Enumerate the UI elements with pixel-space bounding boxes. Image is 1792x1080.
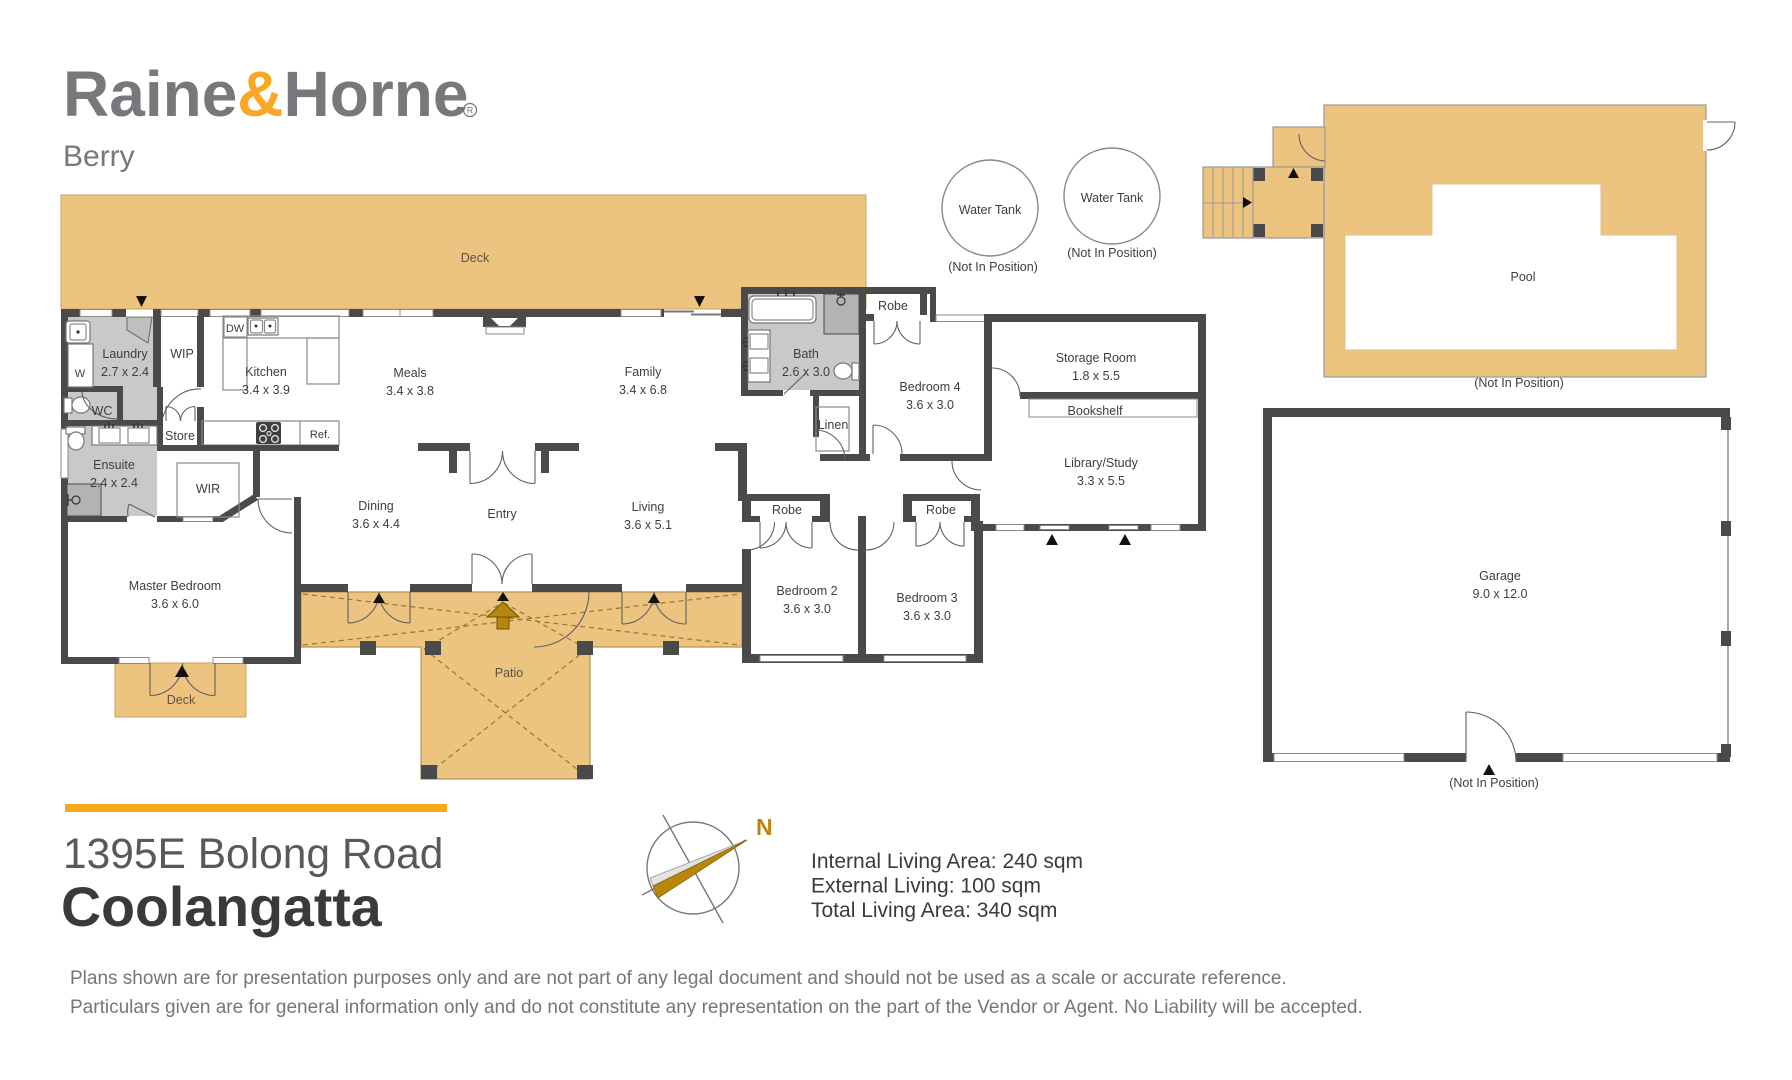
svg-text:3.6 x 4.4: 3.6 x 4.4 (352, 517, 400, 531)
svg-text:Bath: Bath (793, 347, 819, 361)
svg-text:Water Tank: Water Tank (959, 203, 1022, 217)
svg-text:WIR: WIR (196, 482, 220, 496)
svg-text:Robe: Robe (926, 503, 956, 517)
svg-text:Dining: Dining (358, 499, 393, 513)
svg-text:Particulars given are for gene: Particulars given are for general inform… (70, 997, 1363, 1018)
svg-text:Family: Family (625, 365, 663, 379)
svg-text:Garage: Garage (1479, 569, 1521, 583)
svg-text:Robe: Robe (772, 503, 802, 517)
svg-text:Linen: Linen (818, 418, 849, 432)
svg-text:Store: Store (165, 429, 195, 443)
svg-text:Library/Study: Library/Study (1064, 456, 1138, 470)
svg-text:Ref.: Ref. (310, 429, 330, 441)
svg-text:Living: Living (632, 500, 665, 514)
svg-text:DW: DW (226, 323, 245, 335)
svg-text:Kitchen: Kitchen (245, 365, 287, 379)
svg-text:Entry: Entry (487, 507, 517, 521)
svg-text:Master Bedroom: Master Bedroom (129, 579, 221, 593)
svg-text:3.6 x 5.1: 3.6 x 5.1 (624, 518, 672, 532)
svg-text:Berry: Berry (63, 140, 135, 173)
svg-text:Ensuite: Ensuite (93, 458, 135, 472)
svg-text:2.6 x 3.0: 2.6 x 3.0 (782, 365, 830, 379)
svg-text:R: R (467, 106, 474, 116)
svg-text:Coolangatta: Coolangatta (61, 876, 383, 938)
svg-text:W: W (75, 368, 86, 380)
svg-text:3.6 x 3.0: 3.6 x 3.0 (903, 609, 951, 623)
svg-text:Pool: Pool (1510, 270, 1535, 284)
svg-text:Patio: Patio (495, 666, 524, 680)
svg-text:2.7 x 2.4: 2.7 x 2.4 (101, 365, 149, 379)
svg-text:1.8 x 5.5: 1.8 x 5.5 (1072, 369, 1120, 383)
svg-text:Internal Living Area: 240 sqm: Internal Living Area: 240 sqm (811, 850, 1083, 873)
svg-text:3.4 x 6.8: 3.4 x 6.8 (619, 383, 667, 397)
svg-text:Total Living Area: 340 sqm: Total Living Area: 340 sqm (811, 899, 1057, 922)
svg-text:3.6 x 3.0: 3.6 x 3.0 (906, 398, 954, 412)
svg-text:WIP: WIP (170, 347, 194, 361)
svg-text:WC: WC (92, 404, 113, 418)
svg-text:Bedroom 3: Bedroom 3 (896, 591, 957, 605)
svg-text:Storage Room: Storage Room (1056, 351, 1137, 365)
svg-text:(Not In Position): (Not In Position) (948, 260, 1038, 274)
svg-text:(Not In Position): (Not In Position) (1067, 246, 1157, 260)
svg-text:Deck: Deck (461, 251, 490, 265)
svg-text:Raine&Horne: Raine&Horne (63, 58, 468, 130)
svg-text:Meals: Meals (393, 366, 426, 380)
svg-text:Plans shown are for presentati: Plans shown are for presentation purpose… (70, 968, 1287, 989)
svg-text:2.4 x 2.4: 2.4 x 2.4 (90, 476, 138, 490)
svg-text:3.6 x 3.0: 3.6 x 3.0 (783, 602, 831, 616)
svg-text:Bedroom 2: Bedroom 2 (776, 584, 837, 598)
svg-text:Robe: Robe (878, 299, 908, 313)
svg-text:3.6 x 6.0: 3.6 x 6.0 (151, 597, 199, 611)
svg-text:Bookshelf: Bookshelf (1068, 404, 1123, 418)
svg-text:(Not In Position): (Not In Position) (1474, 376, 1564, 390)
svg-text:Deck: Deck (167, 693, 196, 707)
svg-text:3.4 x 3.9: 3.4 x 3.9 (242, 383, 290, 397)
svg-text:3.4 x 3.8: 3.4 x 3.8 (386, 384, 434, 398)
svg-text:1395E Bolong Road: 1395E Bolong Road (63, 831, 443, 878)
svg-text:9.0 x 12.0: 9.0 x 12.0 (1473, 587, 1528, 601)
svg-text:N: N (756, 814, 773, 840)
svg-text:(Not In Position): (Not In Position) (1449, 776, 1539, 790)
svg-text:Water Tank: Water Tank (1081, 191, 1144, 205)
svg-text:Laundry: Laundry (102, 347, 148, 361)
svg-text:3.3 x 5.5: 3.3 x 5.5 (1077, 474, 1125, 488)
svg-text:External Living: 100 sqm: External Living: 100 sqm (811, 875, 1041, 898)
svg-text:Bedroom 4: Bedroom 4 (899, 380, 960, 394)
